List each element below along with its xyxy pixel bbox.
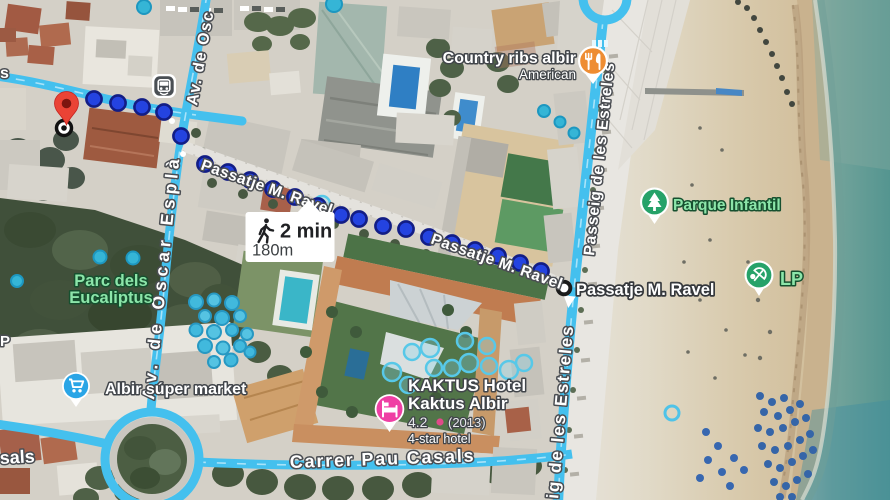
svg-text:180m: 180m — [252, 242, 293, 260]
svg-text:Parque Infantil: Parque Infantil — [673, 197, 781, 214]
svg-text:sals: sals — [0, 446, 35, 468]
svg-text:KAKTUS Hotel: KAKTUS Hotel — [408, 376, 526, 395]
svg-text:Albir súper market: Albir súper market — [105, 381, 247, 398]
svg-text:2 min: 2 min — [280, 221, 332, 243]
svg-text:(2013): (2013) — [448, 415, 486, 430]
svg-text:Kaktus Albir: Kaktus Albir — [408, 394, 508, 413]
svg-text:Country ribs albir: Country ribs albir — [443, 50, 576, 67]
svg-text:4-star hotel: 4-star hotel — [408, 432, 471, 446]
svg-text:4.2: 4.2 — [408, 414, 428, 430]
svg-text:LP: LP — [780, 269, 803, 289]
svg-text:Eucaliptus: Eucaliptus — [69, 289, 152, 307]
svg-text:P: P — [0, 333, 10, 350]
svg-text:American: American — [519, 67, 576, 82]
svg-text:s: s — [0, 65, 9, 82]
svg-text:Parc dels: Parc dels — [74, 272, 147, 290]
svg-text:Passatje M. Ravel: Passatje M. Ravel — [576, 281, 715, 299]
